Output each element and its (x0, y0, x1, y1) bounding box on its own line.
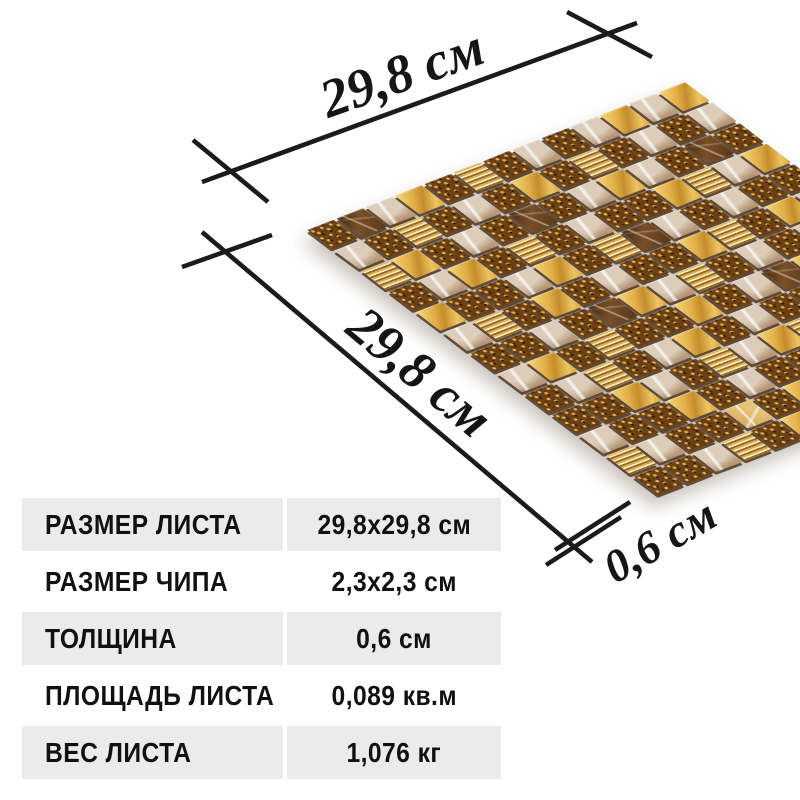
spec-label-cell: ПЛОЩАДЬ ЛИСТА (22, 669, 283, 722)
spec-table-row: ВЕС ЛИСТА1,076 кг (22, 726, 501, 779)
spec-value-text: 0,6 см (356, 623, 432, 655)
spec-value-cell: 0,6 см (287, 612, 501, 665)
dim-tick-height-start (182, 235, 272, 267)
spec-value-text: 29,8x29,8 см (317, 509, 471, 541)
spec-label-cell: ТОЛЩИНА (22, 612, 283, 665)
spec-value-text: 0,089 кв.м (331, 680, 456, 712)
dim-tick-width-end (567, 12, 652, 57)
spec-label-text: РАЗМЕР ЛИСТА (45, 509, 242, 541)
spec-table-row: ПЛОЩАДЬ ЛИСТА0,089 кв.м (22, 669, 501, 722)
spec-table-row: ТОЛЩИНА0,6 см (22, 612, 501, 665)
spec-value-cell: 0,089 кв.м (287, 669, 501, 722)
spec-value-text: 1,076 кг (347, 737, 442, 769)
spec-value-cell: 29,8x29,8 см (287, 498, 501, 551)
dim-tick-width-start (193, 140, 268, 202)
spec-label-text: ТОЛЩИНА (45, 623, 177, 655)
spec-label-text: ПЛОЩАДЬ ЛИСТА (45, 680, 274, 712)
product-dimension-diagram: 29,8 см 29,8 см 0,6 см РАЗМЕР ЛИСТА29,8x… (0, 0, 800, 800)
spec-value-text: 2,3x2,3 см (331, 566, 456, 598)
spec-table-row: РАЗМЕР ЧИПА2,3x2,3 см (22, 555, 501, 608)
spec-value-cell: 1,076 кг (287, 726, 501, 779)
spec-value-cell: 2,3x2,3 см (287, 555, 501, 608)
spec-label-text: РАЗМЕР ЧИПА (45, 566, 228, 598)
spec-table: РАЗМЕР ЛИСТА29,8x29,8 смРАЗМЕР ЧИПА2,3x2… (22, 498, 501, 783)
spec-label-cell: РАЗМЕР ЛИСТА (22, 498, 283, 551)
spec-label-text: ВЕС ЛИСТА (45, 737, 191, 769)
spec-label-cell: ВЕС ЛИСТА (22, 726, 283, 779)
spec-label-cell: РАЗМЕР ЧИПА (22, 555, 283, 608)
spec-table-row: РАЗМЕР ЛИСТА29,8x29,8 см (22, 498, 501, 551)
